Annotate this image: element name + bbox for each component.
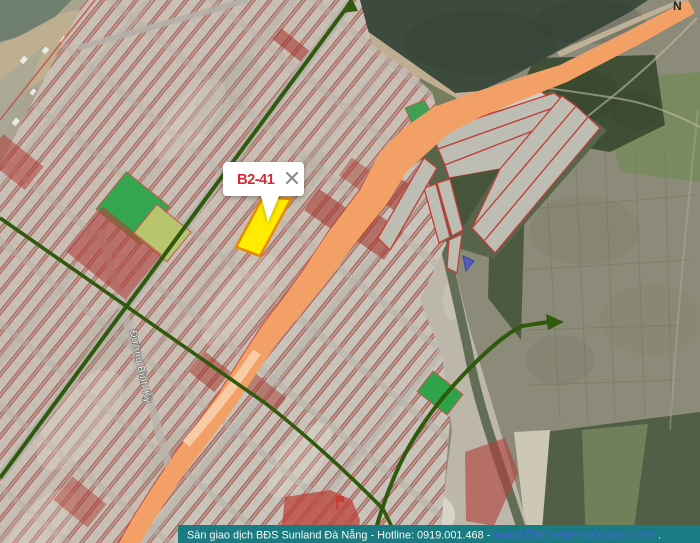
svg-text:N: N (673, 0, 682, 13)
svg-text:Sàn giao dịch BĐS Sunland Đà N: Sàn giao dịch BĐS Sunland Đà Nẵng - Hotl… (187, 528, 661, 542)
svg-text:B2-41: B2-41 (237, 172, 275, 188)
